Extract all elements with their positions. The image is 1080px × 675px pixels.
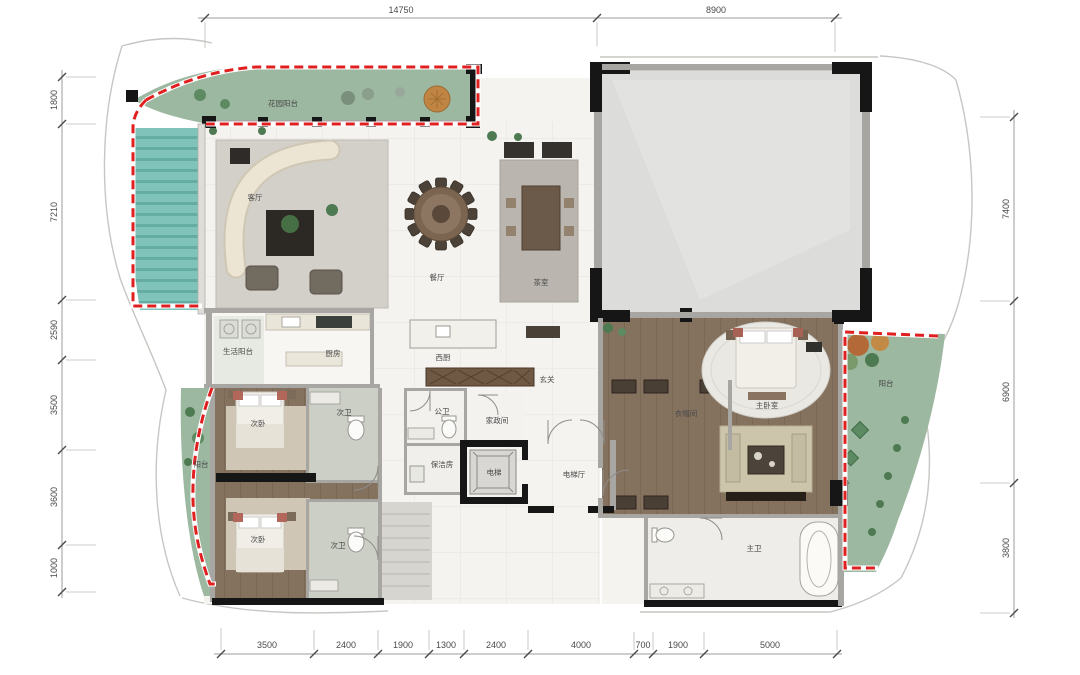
master-bedroom-label: 主卧室 [756,400,779,410]
dim-bottom-4: 1300 [436,640,456,650]
dim-bottom-7: 700 [635,640,650,650]
dim-bottom-6: 4000 [571,640,591,650]
dim-bottom-9: 5000 [760,640,780,650]
dim-bottom-8: 1900 [668,640,688,650]
elevator-label: 电梯 [487,467,502,477]
housekeeping-label: 家政间 [486,415,509,425]
dim-left-6: 1000 [49,558,59,578]
dim-bottom-1: 3500 [257,640,277,650]
secondary-bath-1-label: 次卫 [337,407,352,417]
pool-area [131,128,204,310]
living-room-furniture [216,140,388,308]
west-kitchen-label: 西厨 [436,353,451,362]
tv-panel [230,148,250,164]
bedroom-tv-wall [216,473,316,482]
service-balcony-label: 生活阳台 [223,346,253,356]
dim-bottom-2: 2400 [336,640,356,650]
elevator-hall-label: 电梯厅 [563,469,586,479]
dimension-bottom: 3500 2400 1900 1300 2400 4000 700 1900 5… [214,628,842,658]
foyer-cabinet [426,368,534,386]
west-kitchen-island [410,320,496,348]
dim-left-5: 3600 [49,487,59,507]
floor-plan-drawing: 14750 8900 [0,0,1080,675]
tea-room-label: 茶室 [534,277,549,287]
dim-left-4: 3500 [49,395,59,415]
cleaning-room-label: 保洁房 [431,459,454,469]
dim-left-1: 1800 [49,90,59,110]
balcony-left-label: 阳台 [194,459,209,469]
stair-storage-floor [380,502,432,600]
kitchen-label: 厨房 [326,348,341,358]
garden-balcony-label: 花园阳台 [268,98,298,108]
dim-left-3: 2590 [49,320,59,340]
dim-left-2: 7210 [49,202,59,222]
floor-plan-canvas: 14750 8900 [0,0,1080,675]
cloakroom-label: 衣帽间 [675,408,698,418]
secondary-bedroom-2-label: 次卧 [251,534,266,544]
dim-top-2: 8900 [706,5,726,15]
console-table [526,326,560,338]
armchair [310,270,342,294]
dim-bottom-5: 2400 [486,640,506,650]
dim-right-1: 7400 [1001,199,1011,219]
dimension-right: 7400 6900 3800 [980,110,1018,618]
secondary-bedroom-1-label: 次卧 [251,418,266,428]
master-bath-label: 主卫 [747,543,762,553]
foyer-label: 玄关 [540,374,555,384]
master-sitting-area [720,426,812,501]
balcony-right-label: 阳台 [879,378,894,388]
secondary-bedroom-2-furniture [226,498,310,572]
dimension-top: 14750 8900 [198,5,842,52]
dim-top-1: 14750 [388,5,413,15]
dim-right-3: 3800 [1001,538,1011,558]
secondary-bath-2-label: 次卫 [331,540,346,550]
gray-room [600,70,864,318]
dim-right-2: 6900 [1001,382,1011,402]
living-room-label: 客厅 [248,192,263,202]
guest-bath-label: 公卫 [435,407,450,416]
armchair [246,266,278,290]
dining-room-label: 餐厅 [430,273,445,282]
dim-bottom-3: 1900 [393,640,413,650]
dimension-left: 1800 7210 2590 3500 3600 1000 [49,70,96,598]
